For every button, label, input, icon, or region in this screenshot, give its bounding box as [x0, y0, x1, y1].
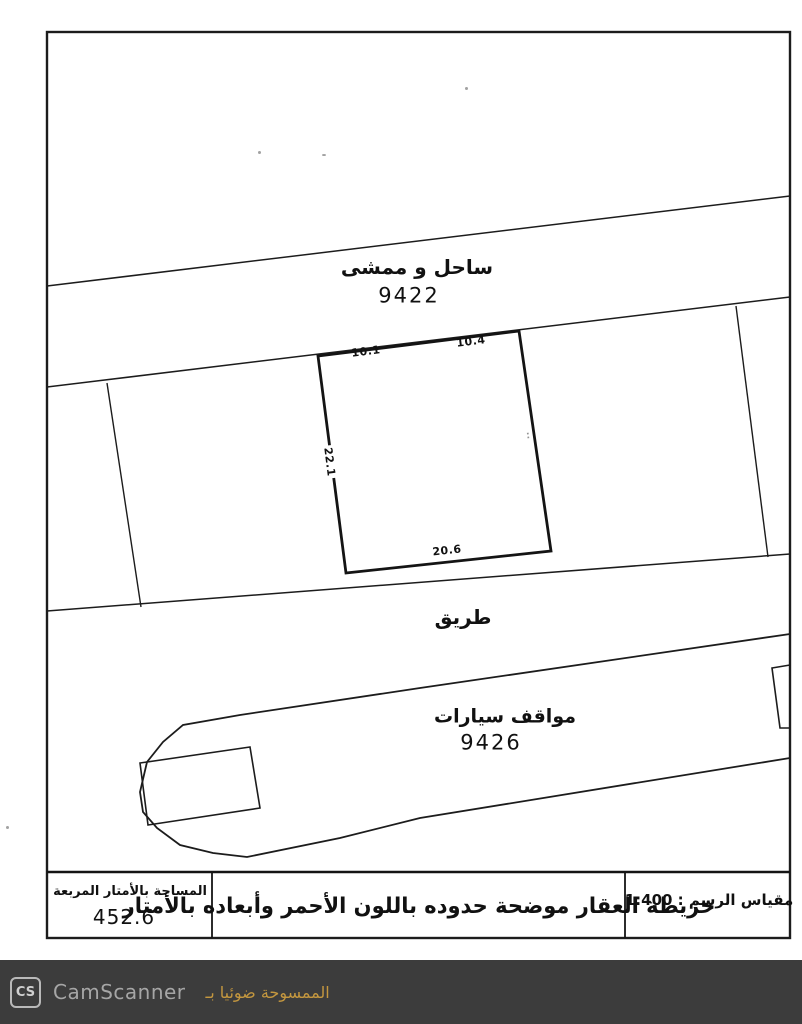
- scan-speck: [258, 151, 261, 154]
- parking-structure-rect: [140, 747, 260, 825]
- coast-band-bottom-line: [47, 297, 790, 387]
- camscanner-app-name: CamScanner: [53, 980, 186, 1004]
- camscanner-footer-bar: CS CamScanner الممسوحة ضوئيا بـ: [0, 960, 802, 1024]
- scanned-survey-page: ساحل و ممشى 9422 10.1 10.4 22.1 20.6 ⋅⋅ …: [0, 0, 802, 1024]
- survey-map-drawing: [0, 0, 802, 962]
- dimension-right-faint-marks: ⋅⋅: [521, 432, 532, 441]
- camscanner-logo-icon: CS: [10, 977, 41, 1008]
- scan-speck: [465, 87, 468, 90]
- map-border: [47, 32, 790, 938]
- coast-walkway-label: ساحل و ممشى: [341, 256, 493, 278]
- left-plot-divider: [107, 383, 141, 607]
- road-label: طريق: [435, 606, 492, 628]
- scanned-with-text: الممسوحة ضوئيا بـ: [206, 983, 330, 1002]
- surveyed-plot-boundary: [318, 331, 551, 573]
- right-edge-structure: [772, 665, 790, 728]
- road-top-line: [47, 554, 790, 611]
- scan-speck: [322, 154, 326, 156]
- right-plot-divider: [736, 306, 768, 557]
- drawing-scale: مقياس الرسم : 1:400: [625, 892, 794, 909]
- coast-parcel-number: 9422: [378, 284, 439, 307]
- parking-label: مواقف سيارات: [434, 707, 576, 728]
- scan-speck: [6, 826, 9, 829]
- parking-parcel-number: 9426: [460, 731, 521, 754]
